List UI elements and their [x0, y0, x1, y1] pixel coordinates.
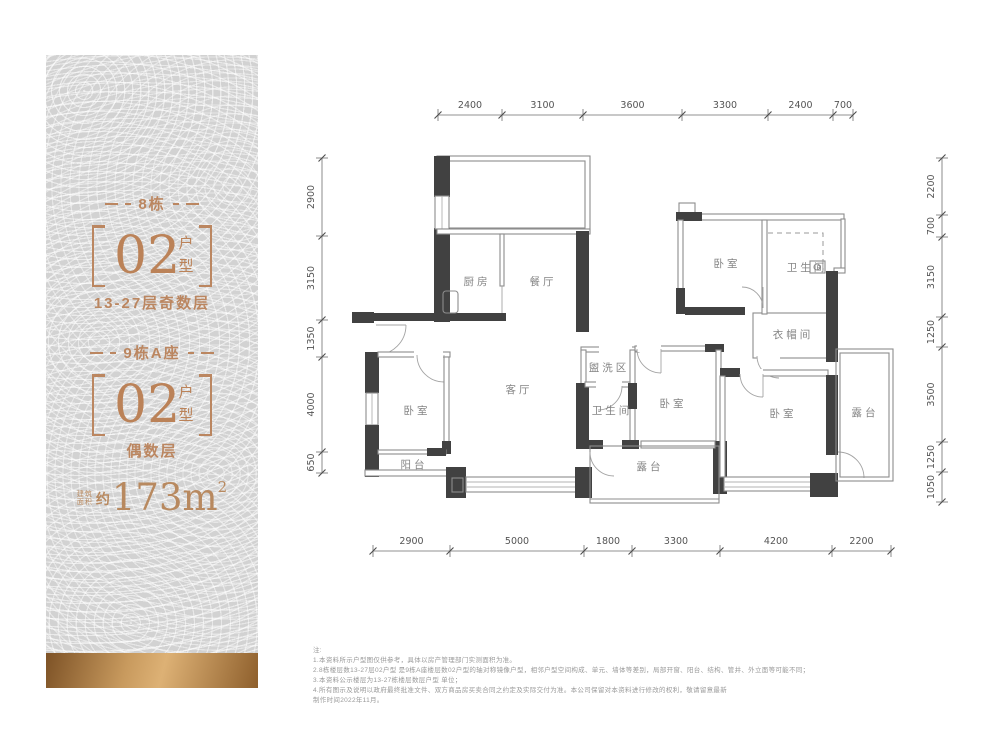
dim-label: 3300: [664, 536, 688, 547]
dim-label: 5000: [505, 536, 529, 547]
dim-label: 4000: [306, 392, 317, 416]
dim-label: 700: [834, 100, 852, 111]
dim-label: 1800: [596, 536, 620, 547]
room-label-dining-room: 餐厅: [530, 275, 557, 288]
dimension-lines: 2400310036003300240070029005000180033004…: [306, 100, 948, 557]
dim-label: 2400: [788, 100, 812, 111]
dim-label: 1250: [926, 445, 937, 469]
notes-lines: 1.本资料所示户型图仅供参考，具体以房产管理部门实测面积为准。2.8栋楼层数13…: [313, 656, 873, 706]
dim-label: 3500: [926, 382, 937, 406]
dim-label: 1250: [926, 320, 937, 344]
room-label-balcony: 阳台: [401, 458, 428, 471]
room-label-terrace-bottom: 露台: [637, 460, 664, 473]
dim-chain-top: 24003100360033002400700: [435, 100, 857, 121]
room-label-kitchen: 厨房: [464, 275, 491, 288]
dim-label: 3600: [620, 100, 644, 111]
room-label-bedroom-top-right: 卧室: [714, 257, 741, 270]
notes-block: 注: 1.本资料所示户型图仅供参考，具体以房产管理部门实测面积为准。2.8栋楼层…: [313, 646, 873, 706]
dim-label: 4200: [764, 536, 788, 547]
dim-chain-left: 2900315013504000650: [306, 155, 328, 477]
dim-label: 3300: [713, 100, 737, 111]
dim-label: 2200: [926, 174, 937, 198]
dim-label: 650: [306, 453, 317, 471]
room-label-bathroom-top-right: 卫生间: [787, 261, 828, 274]
room-label-wash-area: 盥洗区: [589, 362, 630, 374]
notes-line: 3.本资料公示楼层为13-27栋楼层数层户型 单位；: [313, 676, 873, 686]
dim-chain-bottom: 290050001800330042002200: [370, 536, 895, 557]
dim-label: 2900: [399, 536, 423, 547]
floorplan-svg: 厨房餐厅卧室卫生间衣帽间盥洗区客厅卧室卫生间卧室卧室露台阳台露台 2400310…: [0, 0, 1000, 733]
notes-line: 2.8栋楼层数13-27层02户型 是9栋A座楼层数02户型的轴对称镜像户型，相…: [313, 666, 873, 676]
dim-label: 3100: [530, 100, 554, 111]
dim-chain-right: 220070031501250350012501050: [926, 155, 948, 506]
room-label-bedroom-middle: 卧室: [660, 397, 687, 410]
room-label-bedroom-left: 卧室: [404, 404, 431, 417]
dim-label: 2400: [458, 100, 482, 111]
notes-line: 1.本资料所示户型图仅供参考，具体以房产管理部门实测面积为准。: [313, 656, 873, 666]
dim-label: 2900: [306, 185, 317, 209]
dim-label: 3150: [926, 265, 937, 289]
dim-label: 1350: [306, 326, 317, 350]
notes-title: 注:: [313, 646, 873, 656]
room-label-bathroom-middle: 卫生间: [592, 404, 633, 417]
room-label-cloakroom: 衣帽间: [773, 328, 814, 341]
dim-label: 1050: [926, 475, 937, 499]
notes-line: 制作时间2022年11月。: [313, 696, 873, 706]
room-labels: 厨房餐厅卧室卫生间衣帽间盥洗区客厅卧室卫生间卧室卧室露台阳台露台: [401, 257, 879, 473]
notes-line: 4.所有图示及说明以政府最终批准文件、双方商品房买卖合同之约定及实际交付为准。本…: [313, 686, 873, 696]
dim-label: 2200: [849, 536, 873, 547]
floorplan-page: 8栋 02 户型 13-27层奇数层 9栋A座 02 户型 偶数层 建筑 面积: [0, 0, 1000, 733]
dim-label: 3150: [306, 266, 317, 290]
room-label-bedroom-right: 卧室: [770, 407, 797, 420]
room-label-terrace-right: 露台: [852, 406, 879, 419]
room-label-living-room: 客厅: [506, 383, 533, 396]
dim-label: 700: [926, 217, 937, 235]
